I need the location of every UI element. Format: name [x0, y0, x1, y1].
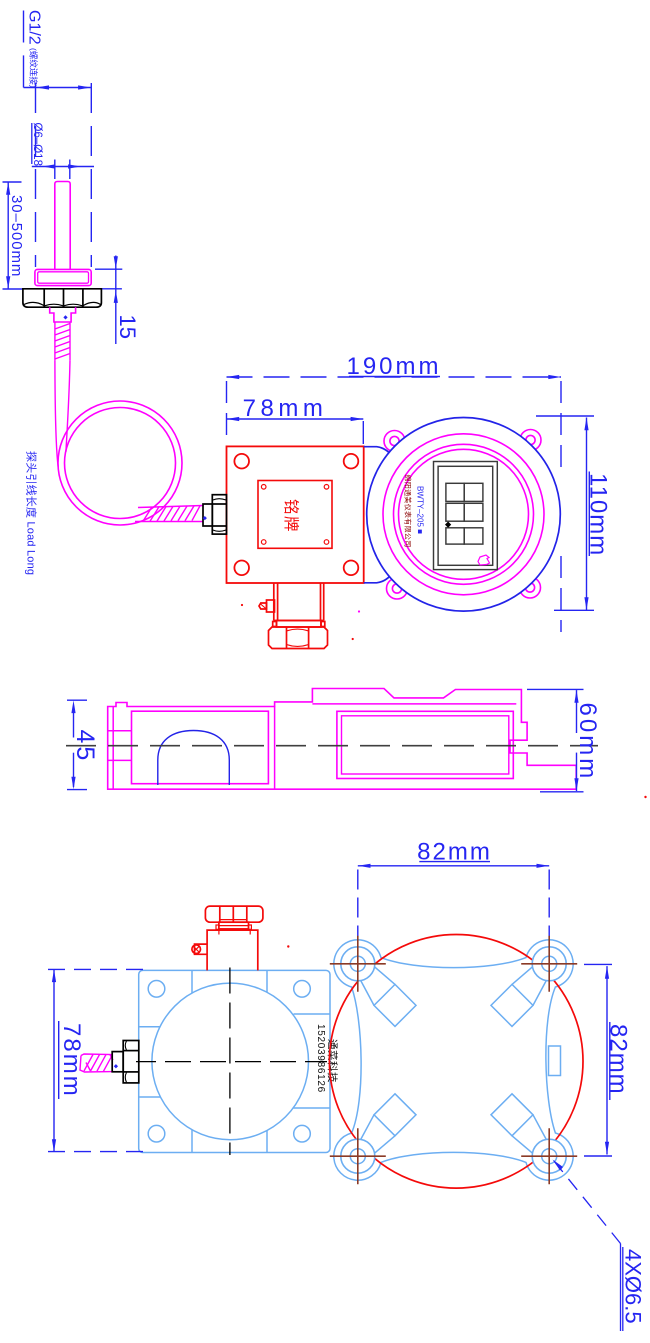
svg-text:82mm: 82mm — [604, 1024, 631, 1095]
svg-text:4XØ6.5: 4XØ6.5 — [621, 1249, 646, 1324]
svg-text:78mm: 78mm — [243, 395, 328, 422]
svg-text:绵阳通美仪表有限公司: 绵阳通美仪表有限公司 — [404, 475, 413, 548]
svg-text:15: 15 — [115, 315, 140, 339]
svg-text:铭牌: 铭牌 — [282, 499, 300, 533]
svg-text:探头引线长度 Load Long: 探头引线长度 Load Long — [25, 451, 39, 575]
svg-text:110mm: 110mm — [585, 473, 612, 556]
svg-text:78mm: 78mm — [58, 1023, 85, 1098]
svg-text:G1/2: G1/2 — [26, 10, 43, 45]
svg-text:Ø6–Ø18: Ø6–Ø18 — [31, 123, 43, 166]
svg-text:(螺纹连接): (螺纹连接) — [29, 48, 39, 88]
svg-text:82mm: 82mm — [417, 839, 492, 866]
svg-text:BWTY–205 ■: BWTY–205 ■ — [416, 486, 425, 534]
svg-text:通菜科技: 通菜科技 — [326, 1039, 339, 1083]
svg-text:45: 45 — [71, 730, 99, 764]
svg-text:15203986126: 15203986126 — [315, 1024, 326, 1093]
svg-text:60mm: 60mm — [574, 703, 601, 782]
svg-text:30–500mm: 30–500mm — [8, 195, 25, 277]
svg-text:190mm: 190mm — [346, 353, 441, 380]
